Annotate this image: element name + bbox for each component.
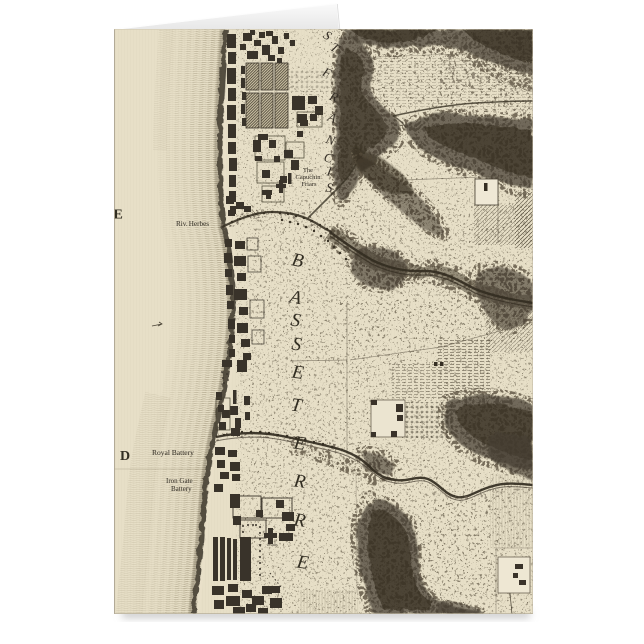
svg-text:Royal Battery: Royal Battery — [152, 448, 194, 457]
svg-text:D: D — [120, 449, 130, 464]
svg-text:Friars: Friars — [301, 181, 317, 188]
svg-text:Capuchin: Capuchin — [296, 174, 322, 181]
svg-text:Riv.Herbes: Riv.Herbes — [176, 220, 209, 228]
svg-text:Battery: Battery — [171, 485, 192, 493]
svg-text:The: The — [303, 167, 313, 174]
svg-text:Jesuits: Jesuits — [267, 542, 278, 547]
svg-text:Iron Gate: Iron Gate — [166, 477, 193, 485]
